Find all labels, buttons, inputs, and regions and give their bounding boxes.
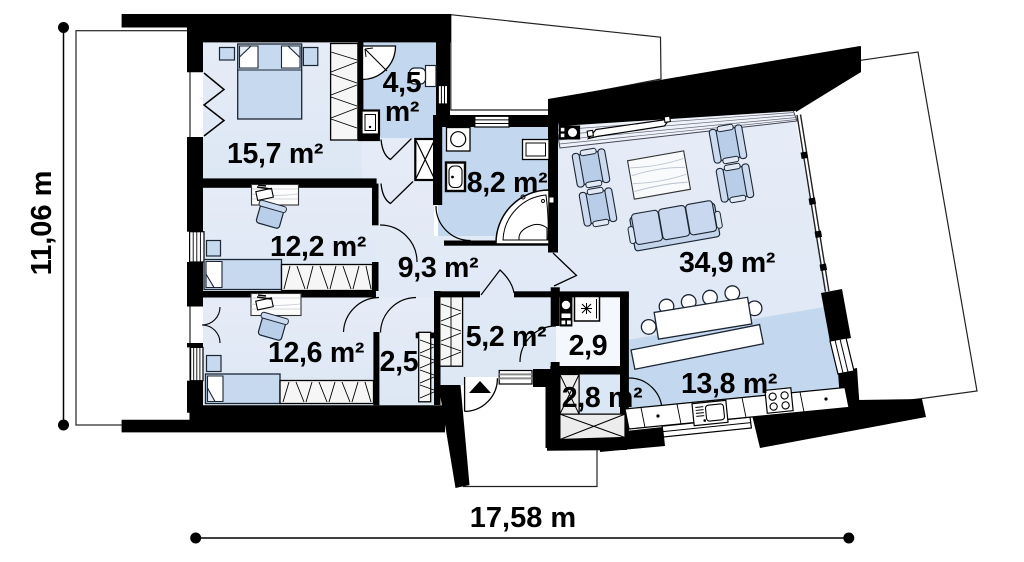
svg-text:2,9: 2,9 <box>569 330 608 362</box>
svg-text:12,2 m²: 12,2 m² <box>270 231 366 263</box>
svg-text:34,9 m²: 34,9 m² <box>679 247 775 279</box>
svg-text:8,2 m²: 8,2 m² <box>467 167 548 199</box>
svg-text:2,8 m²: 2,8 m² <box>562 382 643 414</box>
svg-text:4,5: 4,5 <box>383 67 422 99</box>
svg-text:13,8 m²: 13,8 m² <box>681 368 777 400</box>
svg-text:17,58 m: 17,58 m <box>470 502 576 534</box>
svg-text:15,7 m²: 15,7 m² <box>227 138 323 170</box>
svg-text:m²: m² <box>385 96 419 128</box>
svg-text:12,6 m²: 12,6 m² <box>268 337 364 369</box>
svg-text:2,5: 2,5 <box>380 346 419 378</box>
svg-text:11,06 m: 11,06 m <box>26 171 58 276</box>
svg-text:5,2 m²: 5,2 m² <box>466 321 547 353</box>
svg-text:9,3 m²: 9,3 m² <box>398 252 479 284</box>
